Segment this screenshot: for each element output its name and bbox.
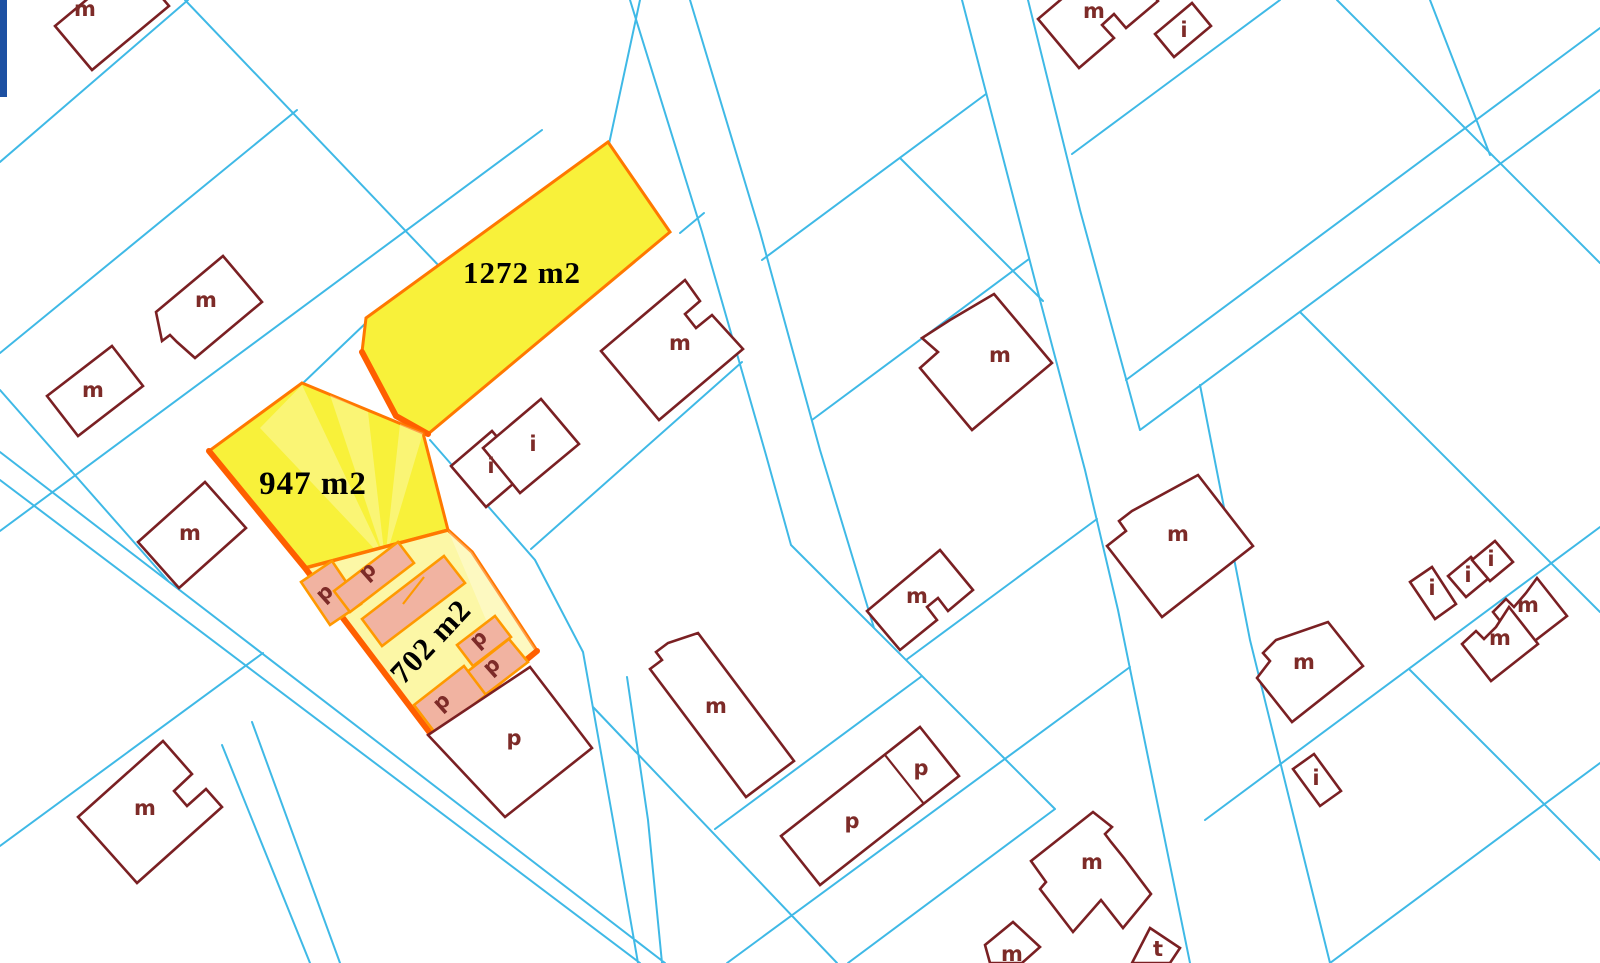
building-footprint: [781, 727, 959, 885]
building-label: m: [1489, 626, 1511, 650]
building-label: m: [1083, 0, 1105, 23]
building-label: i: [1312, 766, 1319, 790]
parcel-area-label-1272: 1272 m2: [463, 255, 581, 290]
building-label: m: [1081, 850, 1103, 874]
building-label: i: [529, 432, 536, 456]
building-label: m: [1517, 593, 1539, 617]
building-label: i: [1180, 18, 1187, 42]
building-label: i: [487, 454, 494, 478]
building-label: t: [1153, 937, 1163, 961]
parcel-area-label-947: 947 m2: [259, 466, 367, 502]
building-label: p: [844, 809, 859, 833]
building-label: p: [506, 726, 521, 750]
building-label: m: [1293, 650, 1315, 674]
building-footprint: [55, 0, 169, 70]
building-label: i: [1464, 563, 1471, 587]
building-label: m: [705, 694, 727, 718]
building-label: m: [1001, 942, 1023, 963]
building-label: m: [989, 343, 1011, 367]
cadastral-map: mmmmmmiimmmimmpppmimmtiiimmppppp 1272 m2…: [0, 0, 1600, 963]
building-label: i: [1428, 576, 1435, 600]
building-label: m: [1167, 522, 1189, 546]
building-label: m: [906, 584, 928, 608]
building-label: m: [82, 378, 104, 402]
building-label: m: [179, 521, 201, 545]
building-label: m: [669, 331, 691, 355]
building-label: p: [913, 756, 928, 780]
building-label: i: [1487, 547, 1494, 571]
left-accent-bar: [0, 0, 7, 97]
building-footprint: [920, 294, 1052, 430]
building-label: m: [74, 0, 96, 21]
building-footprint: [1107, 475, 1253, 617]
building-label: m: [195, 288, 217, 312]
building-label: m: [134, 796, 156, 820]
